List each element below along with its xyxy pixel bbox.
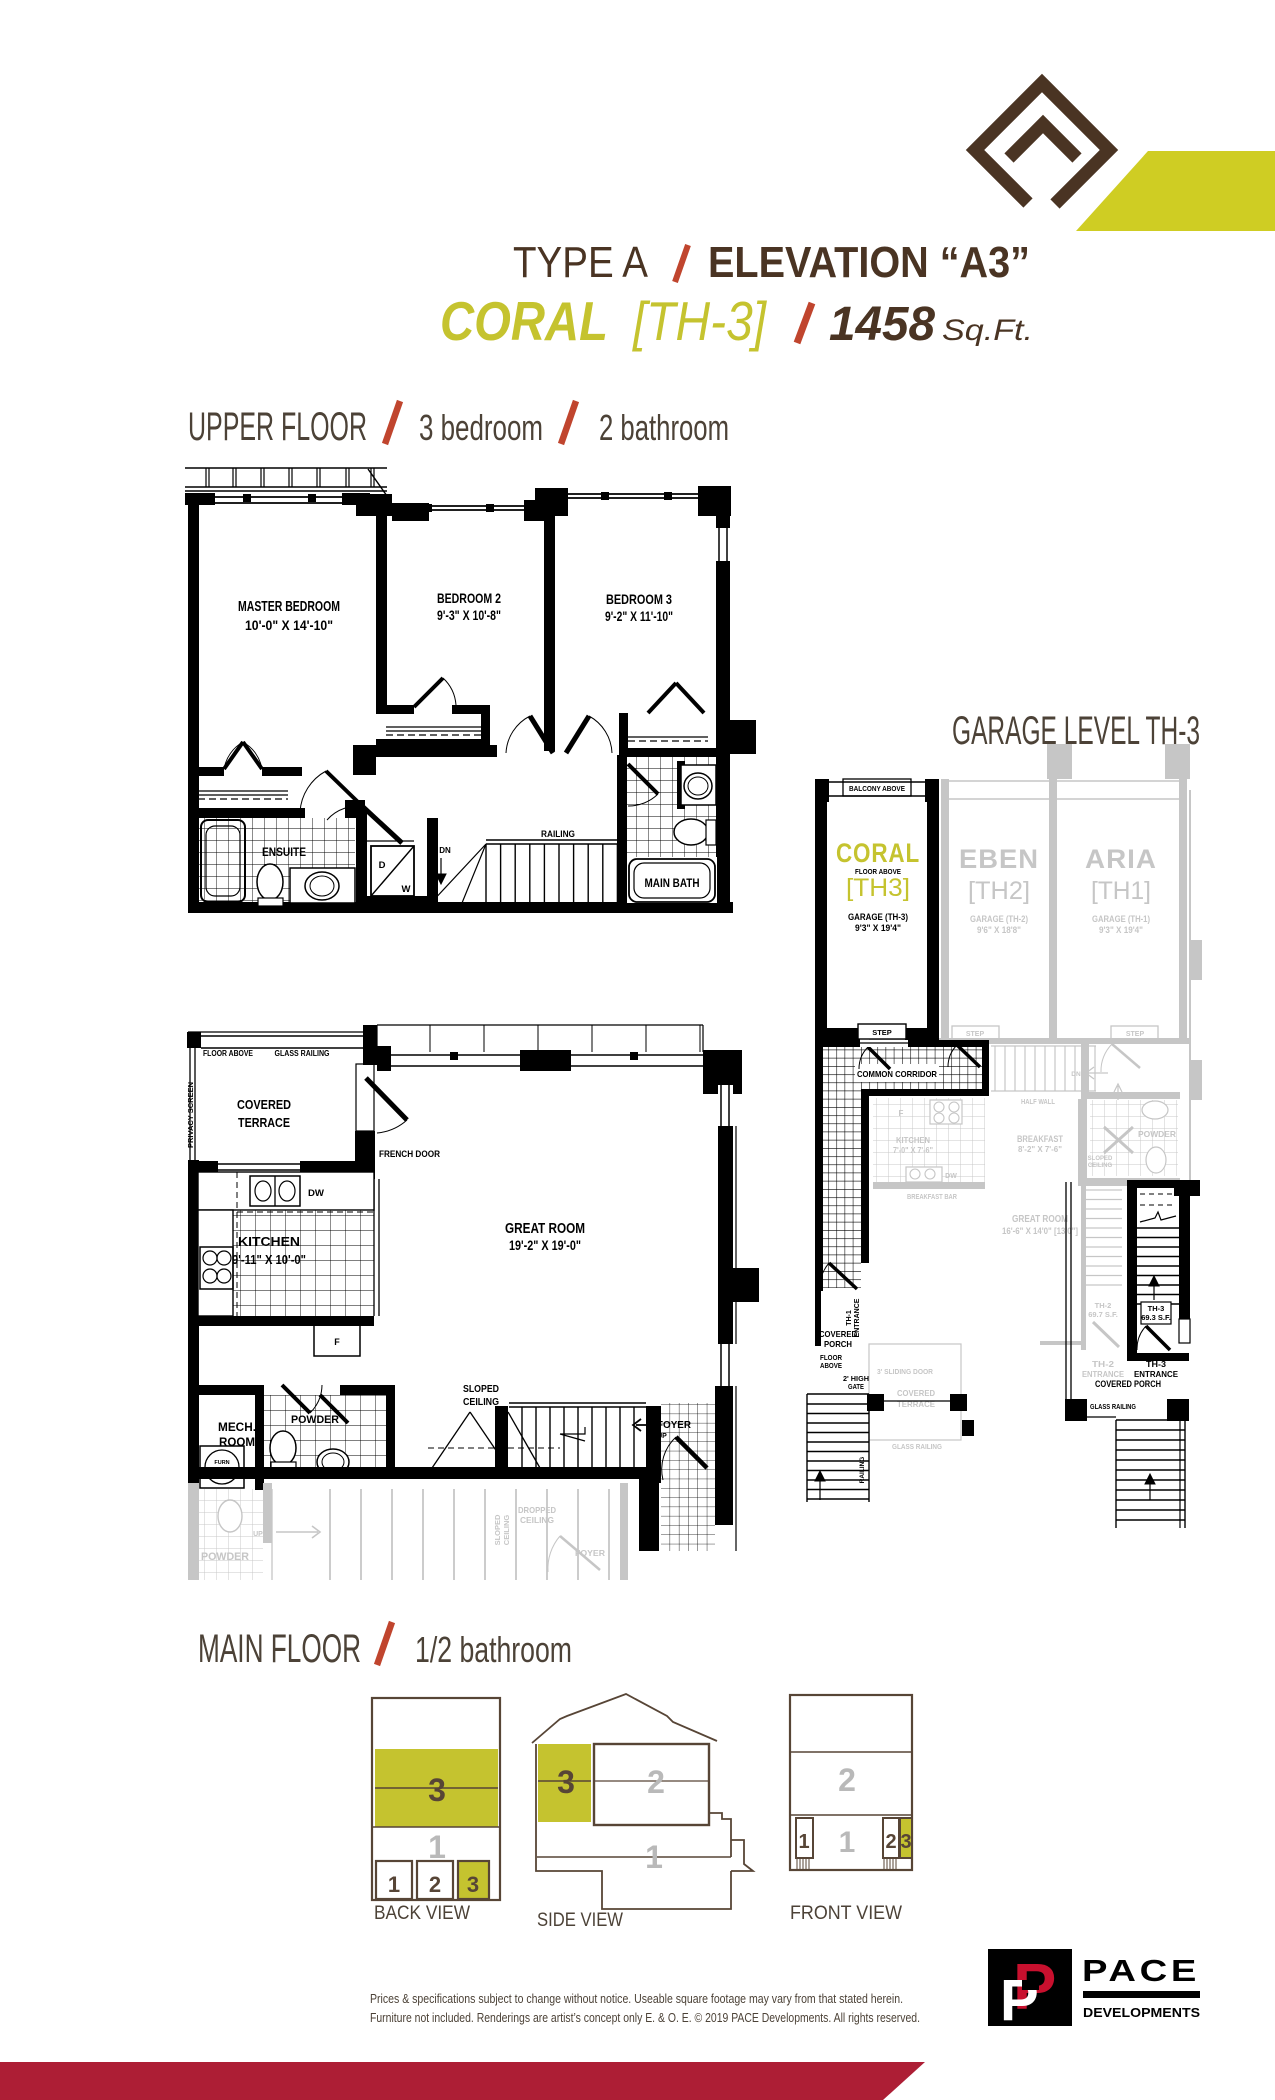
svg-text:8'-2" X 7'-6": 8'-2" X 7'-6"	[1018, 1144, 1062, 1154]
svg-text:[TH1]: [TH1]	[1091, 877, 1151, 905]
svg-text:STEP: STEP	[966, 1031, 985, 1038]
svg-text:FLOOR: FLOOR	[820, 1355, 842, 1362]
svg-text:ABOVE: ABOVE	[820, 1363, 842, 1370]
svg-text:F: F	[334, 1337, 340, 1347]
svg-text:9'3" X 19'4": 9'3" X 19'4"	[855, 923, 901, 933]
svg-text:STEP: STEP	[872, 1028, 892, 1037]
svg-text:DW: DW	[308, 1188, 325, 1198]
svg-text:19'-2" X 19'-0": 19'-2" X 19'-0"	[509, 1238, 581, 1253]
svg-text:GLASS RAILING: GLASS RAILING	[892, 1442, 942, 1451]
svg-text:GATE: GATE	[848, 1384, 864, 1391]
svg-text:STEP: STEP	[1126, 1031, 1145, 1038]
svg-text:2: 2	[885, 1831, 896, 1853]
svg-text:9'-2" X 11'-10": 9'-2" X 11'-10"	[605, 609, 673, 624]
svg-text:FOYER: FOYER	[657, 1419, 691, 1431]
svg-text:1/2 bathroom: 1/2 bathroom	[415, 1629, 572, 1670]
svg-text:BREAKFAST BAR: BREAKFAST BAR	[907, 1194, 957, 1201]
svg-text:UP: UP	[657, 1433, 667, 1440]
svg-text:TH-3: TH-3	[1146, 1360, 1167, 1369]
svg-text:COMMON CORRIDOR: COMMON CORRIDOR	[857, 1069, 937, 1079]
svg-text:TH-1: TH-1	[846, 1310, 853, 1326]
svg-text:DROPPED: DROPPED	[518, 1505, 556, 1515]
svg-text:PORCH: PORCH	[824, 1339, 852, 1349]
svg-text:SLOPED: SLOPED	[493, 1514, 502, 1545]
svg-text:2' HIGH: 2' HIGH	[843, 1376, 869, 1383]
svg-text:MASTER BEDROOM: MASTER BEDROOM	[238, 599, 340, 615]
svg-text:FLOOR ABOVE: FLOOR ABOVE	[203, 1049, 254, 1058]
svg-text:W: W	[402, 884, 411, 895]
svg-text:PACE: PACE	[1082, 1953, 1200, 1988]
svg-text:GLASS RAILING: GLASS RAILING	[1090, 1402, 1136, 1411]
svg-text:1: 1	[839, 1826, 856, 1859]
svg-text:TH-3: TH-3	[1148, 1304, 1165, 1313]
svg-text:3' SLIDING DOOR: 3' SLIDING DOOR	[877, 1367, 934, 1376]
svg-text:[TH-3]: [TH-3]	[631, 290, 767, 352]
svg-text:TERRACE: TERRACE	[238, 1115, 290, 1130]
svg-text:COVERED: COVERED	[819, 1329, 857, 1339]
svg-text:SIDE VIEW: SIDE VIEW	[537, 1910, 623, 1931]
svg-text:1458: 1458	[829, 298, 935, 351]
svg-text:1: 1	[645, 1839, 663, 1875]
svg-text:EBEN: EBEN	[959, 844, 1039, 874]
svg-text:9'6" X 18'8": 9'6" X 18'8"	[977, 925, 1021, 935]
svg-text:KITCHEN: KITCHEN	[896, 1135, 930, 1145]
svg-text:1: 1	[428, 1829, 446, 1865]
svg-text:GARAGE (TH-1): GARAGE (TH-1)	[1092, 914, 1150, 925]
svg-text:3: 3	[428, 1772, 446, 1808]
svg-text:10'-0" X 14'-10": 10'-0" X 14'-10"	[245, 617, 333, 633]
svg-text:SLOPED: SLOPED	[463, 1384, 499, 1395]
svg-text:2: 2	[647, 1764, 665, 1800]
svg-text:TH-2: TH-2	[1095, 1301, 1112, 1310]
svg-text:POWDER: POWDER	[1138, 1129, 1176, 1139]
svg-text:2 bathroom: 2 bathroom	[599, 407, 729, 448]
svg-text:CEILING: CEILING	[520, 1515, 554, 1525]
svg-text:FRONT VIEW: FRONT VIEW	[790, 1903, 902, 1924]
svg-text:RAILING: RAILING	[541, 829, 575, 840]
svg-text:FURN: FURN	[214, 1460, 229, 1466]
svg-text:D: D	[379, 860, 386, 871]
svg-text:2: 2	[838, 1762, 856, 1798]
svg-text:DW: DW	[945, 1173, 957, 1180]
svg-text:CEILING: CEILING	[463, 1397, 499, 1408]
svg-text:[TH3]: [TH3]	[846, 874, 910, 902]
svg-text:FOYER: FOYER	[575, 1549, 605, 1558]
svg-text:3: 3	[467, 1872, 479, 1897]
svg-text:KITCHEN: KITCHEN	[238, 1234, 300, 1249]
svg-text:F: F	[899, 1109, 904, 1118]
svg-text:7'-0" X 7'-6": 7'-0" X 7'-6"	[893, 1146, 933, 1155]
svg-text:COVERED: COVERED	[897, 1388, 935, 1398]
svg-text:FRENCH DOOR: FRENCH DOOR	[379, 1149, 440, 1159]
svg-text:9'3" X 19'4": 9'3" X 19'4"	[1099, 925, 1143, 935]
svg-text:HALF WALL: HALF WALL	[1021, 1097, 1055, 1106]
svg-text:9'-3" X 10'-8": 9'-3" X 10'-8"	[437, 608, 501, 623]
svg-text:69.7 S.F.: 69.7 S.F.	[1088, 1310, 1118, 1319]
svg-text:3: 3	[900, 1831, 911, 1853]
svg-text:69.3 S.F.: 69.3 S.F.	[1141, 1313, 1171, 1322]
svg-text:MECH.: MECH.	[218, 1420, 256, 1434]
svg-text:GREAT ROOM: GREAT ROOM	[505, 1221, 585, 1237]
svg-text:GARAGE (TH-3): GARAGE (TH-3)	[848, 912, 908, 923]
svg-text:GREAT ROOM: GREAT ROOM	[1012, 1214, 1068, 1225]
svg-text:BALCONY ABOVE: BALCONY ABOVE	[849, 784, 905, 793]
svg-text:MAIN BATH: MAIN BATH	[645, 876, 700, 890]
svg-text:Sq.Ft.: Sq.Ft.	[942, 314, 1033, 347]
svg-text:POWDER: POWDER	[291, 1414, 339, 1426]
svg-text:2: 2	[429, 1872, 441, 1897]
svg-text:RAILING: RAILING	[859, 1457, 866, 1484]
svg-text:DEVELOPMENTS: DEVELOPMENTS	[1083, 2005, 1200, 2020]
svg-text:UPPER FLOOR: UPPER FLOOR	[188, 405, 367, 449]
svg-text:DN: DN	[1071, 1071, 1081, 1078]
svg-text:ELEVATION “A3”: ELEVATION “A3”	[708, 238, 1030, 287]
svg-text:1: 1	[388, 1872, 400, 1897]
svg-text:COVERED PORCH: COVERED PORCH	[1095, 1379, 1161, 1390]
svg-text:PRIVACY SCREEN: PRIVACY SCREEN	[186, 1082, 195, 1148]
svg-text:ENTRANCE: ENTRANCE	[1082, 1370, 1125, 1379]
svg-text:POWDER: POWDER	[201, 1551, 249, 1563]
svg-text:[TH2]: [TH2]	[968, 877, 1030, 905]
svg-text:TYPE A: TYPE A	[513, 238, 649, 287]
svg-text:ENTRANCE: ENTRANCE	[1134, 1370, 1179, 1379]
svg-text:CORAL: CORAL	[836, 838, 920, 868]
svg-text:3: 3	[557, 1764, 575, 1800]
svg-text:DN: DN	[439, 846, 451, 855]
svg-text:UP: UP	[253, 1531, 263, 1538]
svg-text:MAIN FLOOR: MAIN FLOOR	[198, 1627, 361, 1671]
svg-text:9'-11" X 10'-0": 9'-11" X 10'-0"	[232, 1253, 306, 1267]
svg-text:TH-2: TH-2	[1092, 1360, 1115, 1369]
svg-text:ARIA: ARIA	[1085, 844, 1157, 874]
svg-text:GARAGE LEVEL TH-3: GARAGE LEVEL TH-3	[952, 709, 1200, 753]
svg-text:SLOPED: SLOPED	[1088, 1156, 1113, 1162]
svg-text:GLASS RAILING: GLASS RAILING	[275, 1049, 330, 1058]
svg-text:ENSUITE: ENSUITE	[262, 845, 306, 859]
svg-text:CEILING: CEILING	[1088, 1163, 1113, 1169]
svg-text:CORAL: CORAL	[440, 290, 608, 352]
svg-text:CEILING: CEILING	[502, 1515, 511, 1546]
svg-text:BACK VIEW: BACK VIEW	[374, 1903, 470, 1924]
svg-text:P: P	[1000, 1968, 1039, 2033]
svg-text:1: 1	[798, 1831, 809, 1853]
svg-text:COVERED: COVERED	[237, 1097, 291, 1112]
svg-text:BREAKFAST: BREAKFAST	[1017, 1134, 1063, 1144]
svg-text:ROOM: ROOM	[219, 1435, 255, 1449]
svg-text:BEDROOM 2: BEDROOM 2	[437, 590, 501, 606]
svg-text:Prices & specifications subjec: Prices & specifications subject to chang…	[370, 1991, 903, 2006]
svg-text:GARAGE (TH-2): GARAGE (TH-2)	[970, 914, 1028, 925]
svg-text:Furniture not included. Render: Furniture not included. Renderings are a…	[370, 2010, 920, 2025]
svg-text:BEDROOM 3: BEDROOM 3	[606, 591, 672, 607]
svg-text:3 bedroom: 3 bedroom	[419, 407, 543, 448]
